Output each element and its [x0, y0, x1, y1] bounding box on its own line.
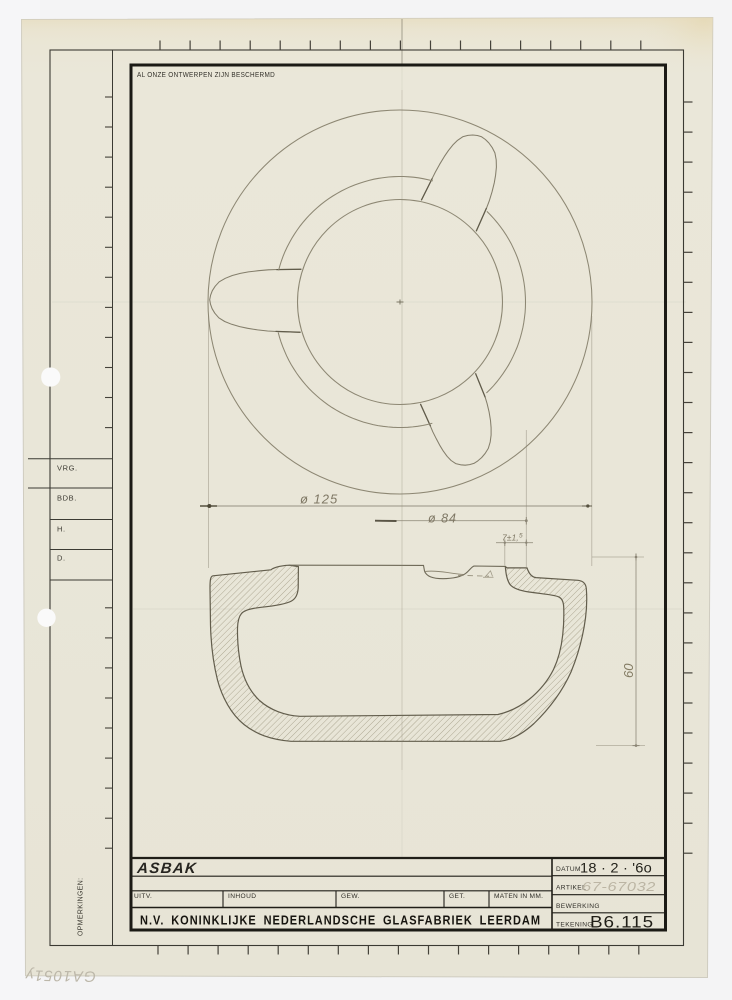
svg-text:INHOUD: INHOUD — [228, 893, 256, 900]
svg-text:ø 125: ø 125 — [300, 492, 338, 507]
svg-text:D.: D. — [57, 554, 66, 563]
svg-text:60: 60 — [621, 663, 636, 678]
svg-text:B6.115: B6.115 — [590, 914, 654, 932]
svg-text:5: 5 — [519, 533, 523, 540]
svg-text:DATUM: DATUM — [556, 866, 581, 873]
svg-text:N.V. KONINKLIJKE NEDERLANDSCHE: N.V. KONINKLIJKE NEDERLANDSCHE GLASFABRI… — [140, 914, 541, 928]
svg-text:18 · 2 · '6o: 18 · 2 · '6o — [580, 861, 652, 876]
svg-text:GET.: GET. — [449, 893, 465, 900]
svg-text:H.: H. — [57, 525, 66, 534]
svg-text:BDB.: BDB. — [57, 494, 77, 503]
svg-text:OPMERKINGEN:: OPMERKINGEN: — [78, 878, 85, 936]
svg-text:MATEN IN MM.: MATEN IN MM. — [494, 893, 543, 900]
svg-text:7±1,: 7±1, — [502, 533, 519, 543]
svg-text:ø 84: ø 84 — [428, 512, 457, 526]
svg-text:VRG.: VRG. — [57, 464, 78, 473]
svg-text:67-67032: 67-67032 — [582, 880, 656, 894]
svg-text:BEWERKING: BEWERKING — [556, 903, 600, 910]
svg-text:ASBAK: ASBAK — [136, 860, 198, 877]
svg-text:UITV.: UITV. — [134, 893, 152, 900]
svg-text:GEW.: GEW. — [341, 893, 360, 900]
svg-text:GA1051y: GA1051y — [24, 966, 96, 984]
svg-text:TEKENING: TEKENING — [556, 922, 593, 929]
svg-text:AL ONZE ONTWERPEN ZIJN BESCHER: AL ONZE ONTWERPEN ZIJN BESCHERMD — [137, 70, 275, 79]
